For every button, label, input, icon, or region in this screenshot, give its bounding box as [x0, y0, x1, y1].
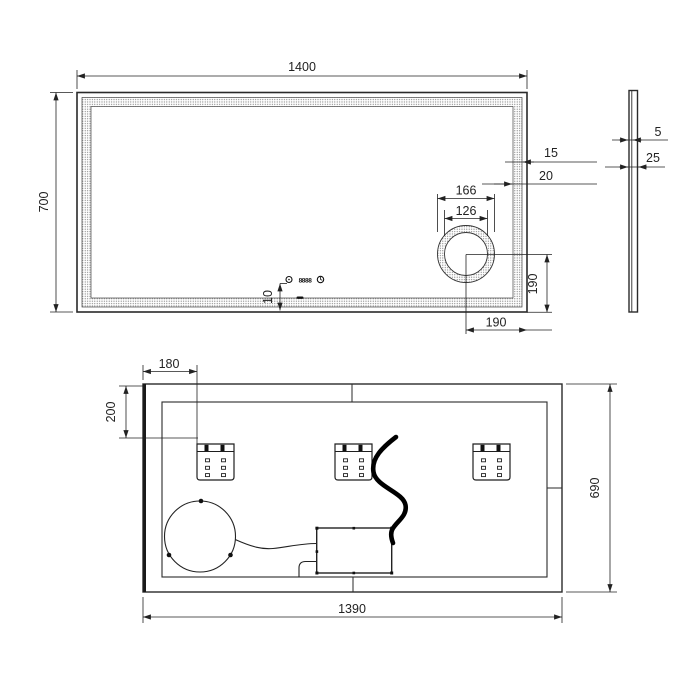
dim-front-width-label: 1400 — [288, 60, 316, 74]
dim-bracket-from-left-label: 180 — [159, 357, 180, 371]
side-profile-outline — [629, 91, 638, 313]
side-view: 5 25 — [605, 91, 668, 313]
dim-magnifier-outer-label: 166 — [456, 184, 477, 198]
dim-total-depth-label: 25 — [646, 151, 660, 165]
dim-magnifier-inner-label: 126 — [456, 204, 477, 218]
dim-back-height-label: 690 — [588, 478, 602, 499]
back-view: 180 200 690 1390 — [104, 357, 617, 623]
dim-back-width-label: 1390 — [338, 602, 366, 616]
dim-led-inset-outer-label: 20 — [539, 169, 553, 183]
digital-display: 8888 — [299, 277, 313, 284]
dim-magnifier-to-right-label: 190 — [486, 316, 507, 330]
dim-touch-offset-label: 10 — [261, 290, 275, 304]
dim-magnifier-to-bottom-label: 190 — [526, 274, 540, 295]
front-view: 8888 1400 700 15 20 — [37, 60, 597, 334]
dim-glass-thickness-label: 5 — [655, 125, 662, 139]
power-icon-dot — [288, 279, 290, 281]
mounting-bracket-1 — [197, 444, 234, 480]
mirror-technical-drawing: 8888 1400 700 15 20 — [0, 0, 700, 700]
dim-bracket-from-top-label: 200 — [104, 402, 118, 423]
touch-button-dash — [297, 297, 304, 299]
mounting-bracket-2 — [335, 444, 372, 480]
dim-front-height-label: 700 — [37, 192, 51, 213]
drawing-canvas: 8888 1400 700 15 20 — [0, 0, 700, 700]
dim-front-height — [50, 93, 73, 313]
driver-box — [315, 527, 393, 575]
dim-led-inset-inner-label: 15 — [544, 146, 558, 160]
mounting-bracket-3 — [473, 444, 510, 480]
